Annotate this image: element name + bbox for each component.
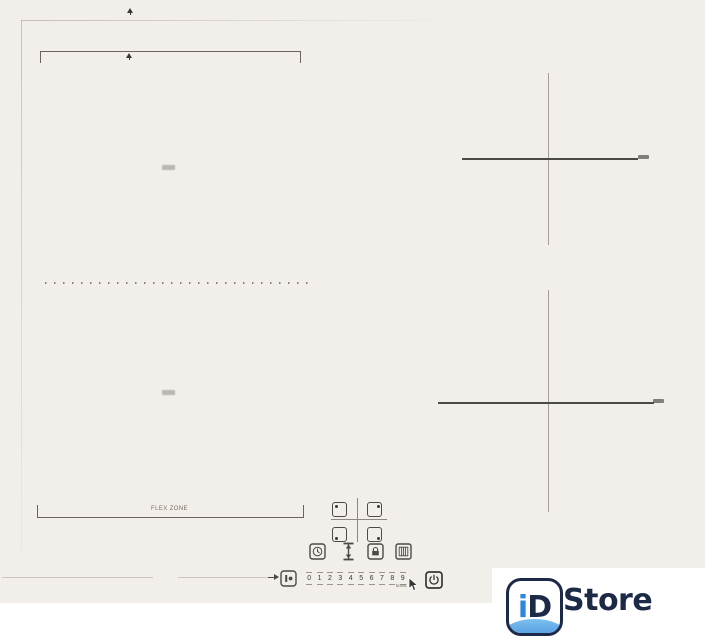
zone-dot — [377, 537, 380, 540]
glass-left-edge — [21, 20, 22, 556]
stop-go-icon — [280, 570, 297, 587]
logo-badge-text: iD — [509, 581, 560, 633]
zone-key-front-left — [332, 527, 347, 542]
power-level-slider: 0 1 2 3 4 5 6 7 8 9 — [304, 572, 408, 585]
power-level-key: 0 — [304, 572, 314, 585]
leader-line-right — [178, 577, 268, 578]
power-level-key: 5 — [356, 572, 366, 585]
leader-arrow-head — [274, 574, 279, 580]
logo-letter-d: D — [527, 590, 551, 625]
logo-badge: iD — [506, 578, 563, 636]
front-left-zone-label-smudge — [162, 390, 175, 395]
front-right-zone-cross-vertical — [548, 290, 549, 512]
flex-zone-label: FLEX ZONE — [37, 506, 302, 512]
glass-top-edge — [21, 20, 466, 21]
zone-dot — [377, 505, 380, 508]
zone-dot — [335, 505, 338, 508]
zone-selector-cross-horizontal — [331, 519, 387, 520]
top-tick-stem — [130, 12, 131, 15]
zone-key-front-right — [367, 527, 382, 542]
hand-cursor-icon — [408, 577, 419, 592]
bracket-center-stem — [129, 57, 130, 60]
power-level-key: 4 — [346, 572, 356, 585]
zone-key-rear-right — [367, 502, 382, 517]
bridge-flex-icon — [341, 542, 356, 561]
zone-selector-cross-vertical — [357, 498, 358, 542]
product-image: FLEX ZONE — [0, 0, 721, 640]
flex-zone-bracket-top — [40, 51, 301, 63]
power-level-key: 1 — [314, 572, 324, 585]
keep-warm-grill-icon — [395, 543, 412, 560]
zone-dot — [335, 537, 338, 540]
front-right-zone-cross-horizontal — [438, 402, 654, 404]
zone-key-rear-left — [332, 502, 347, 517]
power-level-key: 3 — [335, 572, 345, 585]
leader-line-left — [2, 577, 153, 578]
logo-letter-i: i — [518, 590, 527, 625]
boost-label: boost — [396, 584, 407, 588]
front-right-zone-label-smudge — [653, 399, 664, 403]
power-level-key: 2 — [325, 572, 335, 585]
power-level-key: 7 — [377, 572, 387, 585]
logo-store-text: Store — [563, 583, 652, 618]
rear-right-zone-label-smudge — [638, 155, 649, 159]
flex-zone-dotted-divider — [45, 282, 310, 284]
timer-clock-icon — [309, 543, 326, 560]
rear-left-zone-label-smudge — [162, 165, 175, 170]
power-icon — [425, 571, 443, 589]
child-lock-icon — [367, 543, 384, 560]
power-level-key: 6 — [366, 572, 376, 585]
rear-right-zone-cross-horizontal — [462, 158, 638, 160]
